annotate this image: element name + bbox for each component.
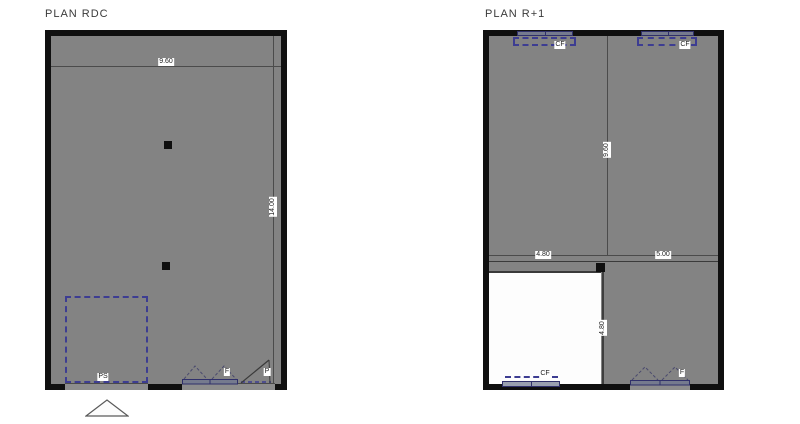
floor-plan-canvas: PLAN RDC PLAN R+1 9.60 14.00 PS F: [0, 0, 800, 424]
plan-rdc-drawing: 9.60 14.00 PS F P: [45, 30, 287, 390]
plan-r1-drawing: CF CF 9.60 4.80 5.00 4.80 CF F: [483, 30, 724, 390]
r1-window-label: F: [679, 369, 685, 377]
rdc-window-label: F: [224, 368, 230, 376]
r1-lower-height-dimension: 4.80: [599, 320, 607, 336]
r1-window-bar: [517, 31, 573, 36]
r1-window-bar: [641, 31, 694, 36]
rdc-interior-line-horizontal: [51, 66, 281, 67]
rdc-width-dimension: 9.60: [158, 58, 174, 66]
r1-window-cf-right-label: CF: [679, 41, 690, 49]
rdc-sectional-door-zone: [65, 296, 148, 383]
r1-window-dashed-zone: [513, 37, 576, 46]
r1-interior-line-horizontal: [489, 261, 718, 262]
r1-width-left-dimension: 4.80: [535, 251, 551, 259]
rdc-column-marker: [164, 141, 172, 149]
r1-width-right-dimension: 5.00: [655, 251, 671, 259]
rdc-door-label: P: [264, 368, 271, 376]
door-swing-symbol: [237, 354, 277, 387]
rdc-height-dimension: 14.00: [269, 197, 277, 217]
plan-r1-title: PLAN R+1: [485, 8, 545, 20]
r1-column-marker: [596, 263, 605, 272]
rdc-sectional-door-opening: [65, 383, 148, 390]
r1-window-cf-left-label: CF: [554, 41, 565, 49]
plan-rdc-title: PLAN RDC: [45, 8, 109, 20]
r1-bottom-window-cf-label: CF: [539, 370, 550, 378]
rdc-sectional-door-label: PS: [97, 373, 108, 381]
rdc-column-marker: [162, 262, 170, 270]
r1-dimension-line: [489, 255, 718, 256]
casement-window-symbol: [181, 359, 239, 385]
r1-floor-void-zone: [489, 271, 601, 384]
entrance-triangle-icon: [85, 398, 129, 419]
r1-upper-height-dimension: 9.60: [603, 142, 611, 158]
r1-bottom-window-bar: [502, 381, 560, 387]
